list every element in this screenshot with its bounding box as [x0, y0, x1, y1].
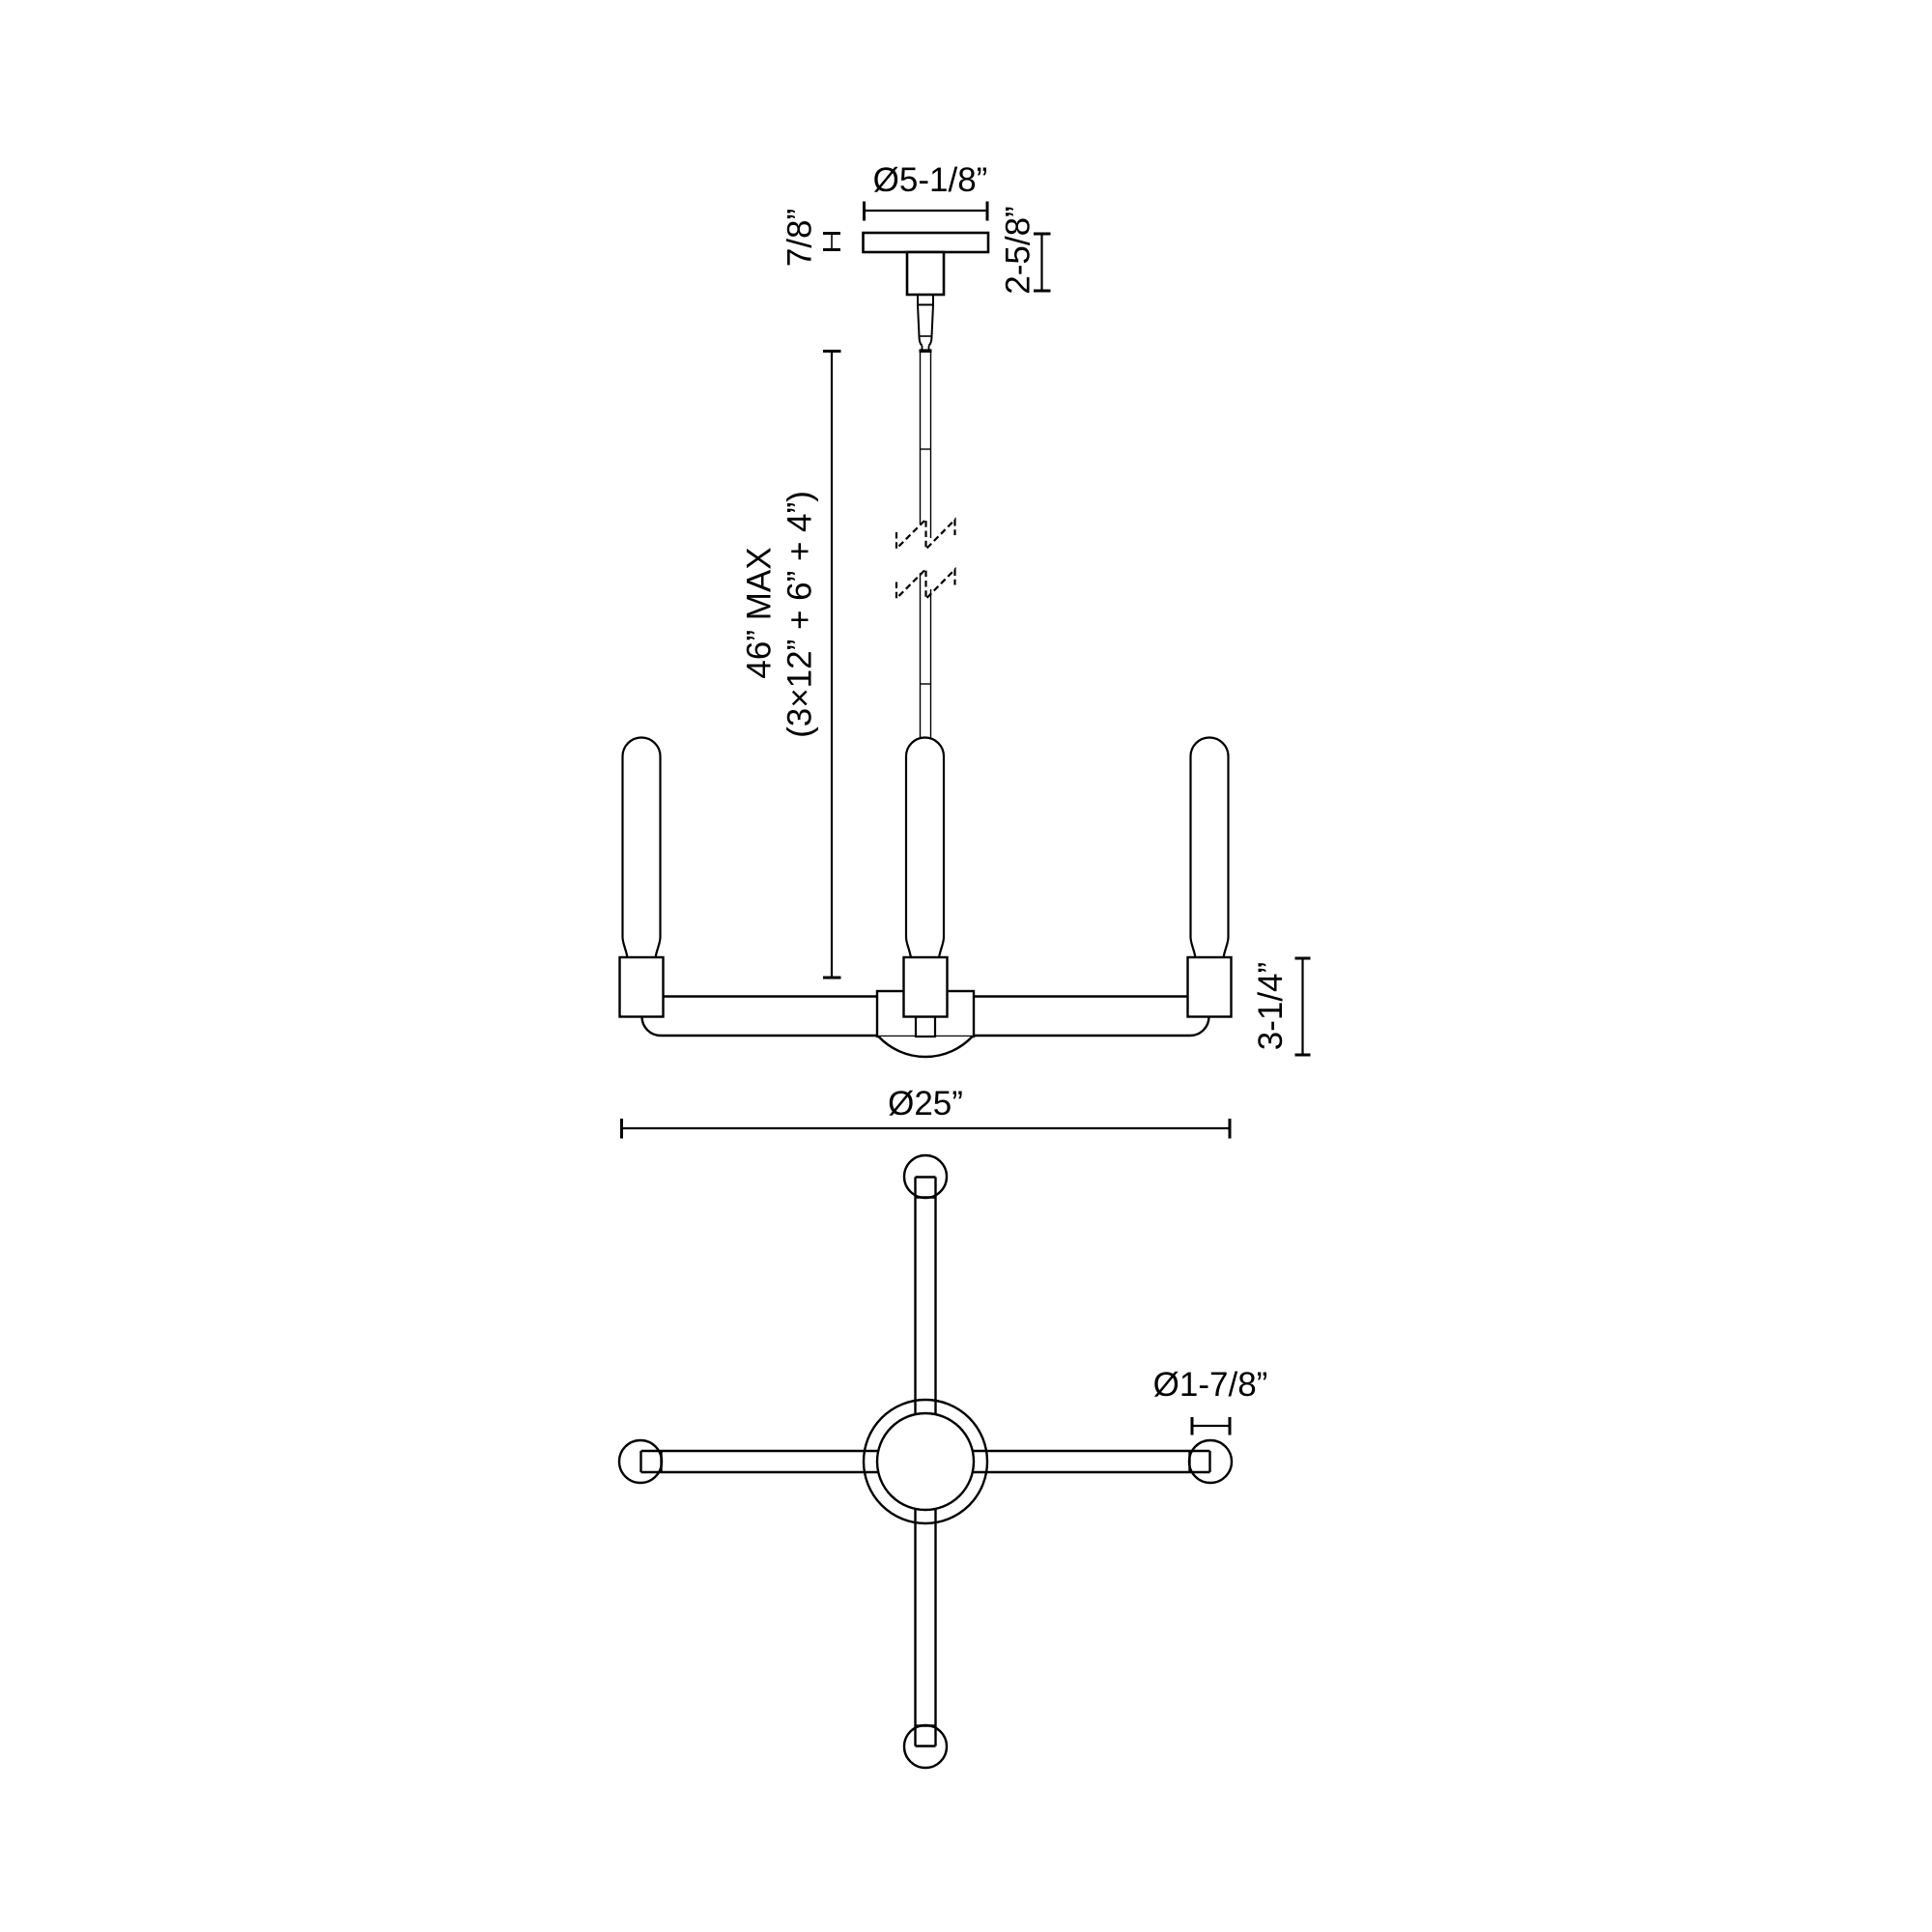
svg-text:Ø5-1/8”: Ø5-1/8” — [873, 161, 988, 199]
svg-text:2-5/8”: 2-5/8” — [999, 206, 1037, 294]
svg-text:Ø25”: Ø25” — [888, 1085, 963, 1122]
svg-text:7/8”: 7/8” — [781, 209, 818, 267]
svg-text:3-1/4”: 3-1/4” — [1252, 962, 1290, 1050]
svg-text:(3×12” + 6” + 4”): (3×12” + 6” + 4”) — [781, 491, 818, 738]
svg-text:46” MAX: 46” MAX — [740, 547, 778, 678]
svg-text:Ø1-7/8”: Ø1-7/8” — [1153, 1366, 1268, 1404]
